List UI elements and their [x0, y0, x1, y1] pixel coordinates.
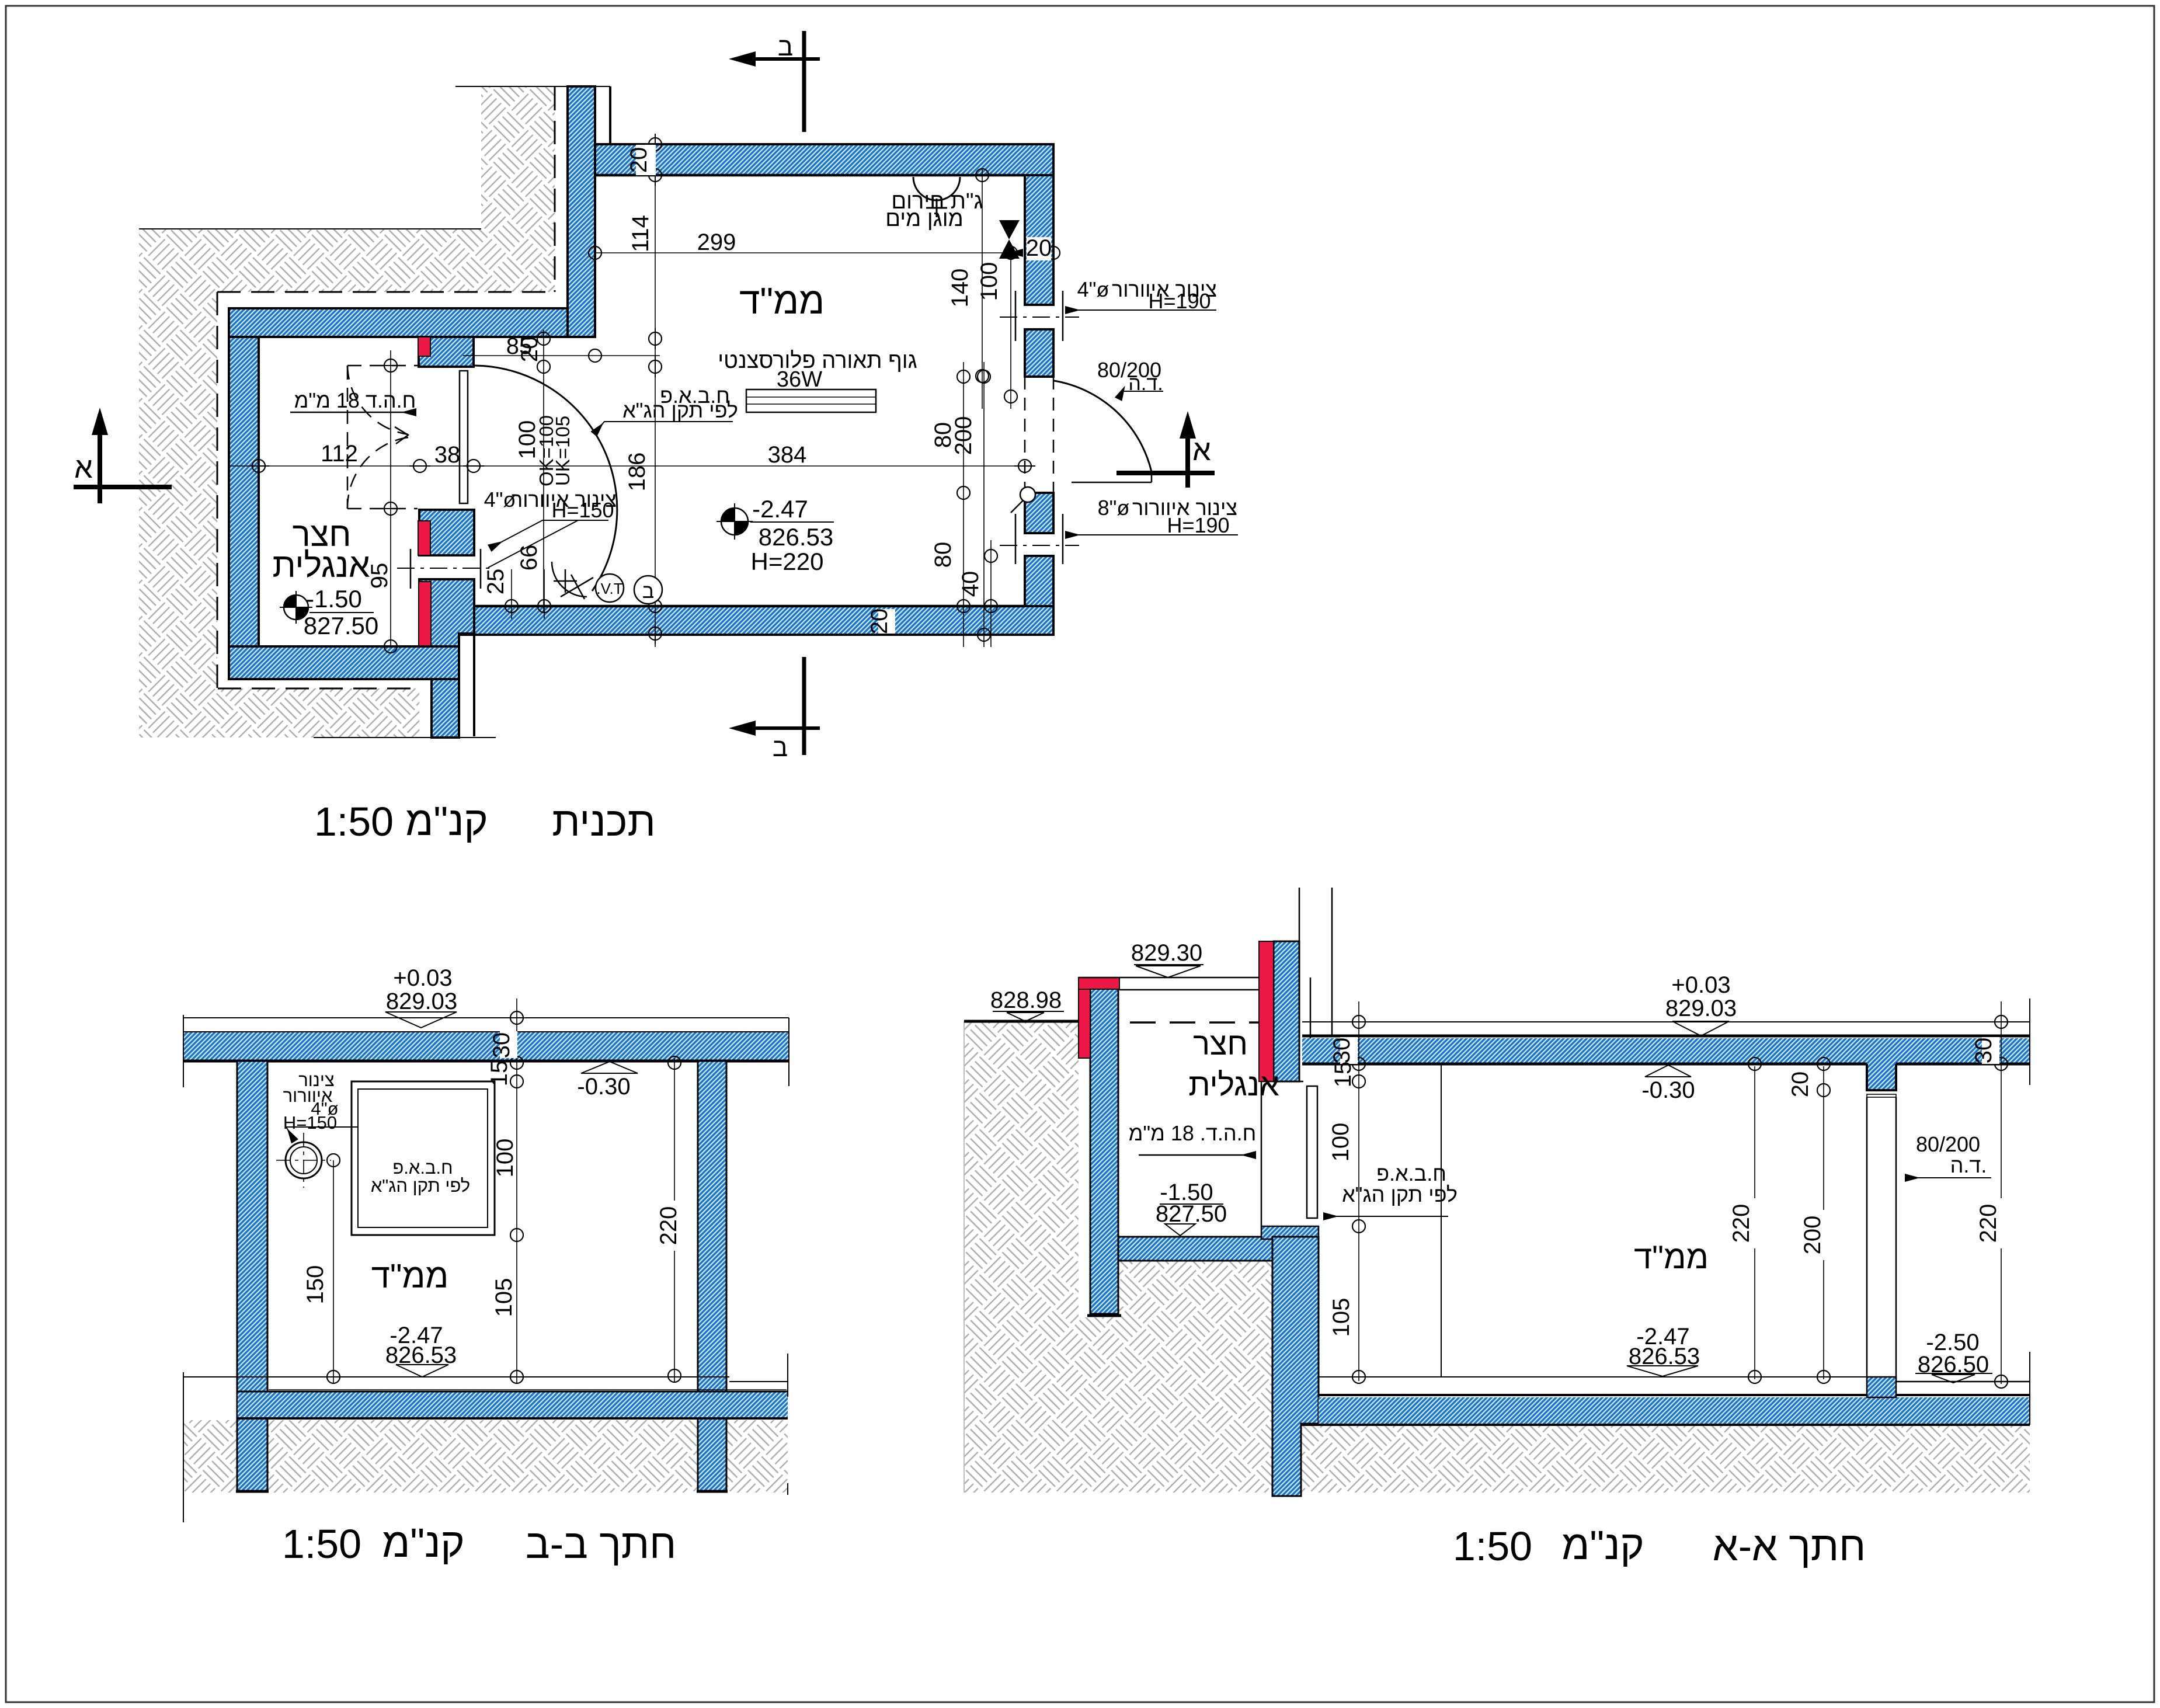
svg-text:150: 150: [302, 1265, 328, 1305]
svg-text:H=220: H=220: [751, 548, 824, 575]
svg-text:95: 95: [367, 563, 392, 589]
svg-text:829.03: 829.03: [386, 989, 457, 1014]
svg-text:30: 30: [489, 1032, 514, 1059]
svg-text:+0.03: +0.03: [1671, 972, 1730, 998]
svg-text:186: 186: [624, 453, 650, 492]
svg-text:-1.50: -1.50: [306, 585, 362, 613]
svg-text:קנ"מ: קנ"מ: [1561, 1522, 1644, 1568]
svg-text:30: 30: [1329, 1038, 1355, 1064]
svg-text:חתך ב-ב: חתך ב-ב: [526, 1521, 676, 1567]
svg-text:ממ"ד: ממ"ד: [1634, 1239, 1709, 1275]
svg-text:20: 20: [626, 147, 652, 173]
svg-text:8"ø: 8"ø: [1098, 496, 1130, 520]
svg-text:66: 66: [516, 545, 542, 571]
svg-text:H=190: H=190: [1148, 289, 1211, 313]
svg-text:-0.30: -0.30: [577, 1074, 630, 1100]
svg-text:א: א: [74, 451, 92, 484]
svg-text:ח.ב.א.פ: ח.ב.א.פ: [392, 1157, 453, 1178]
svg-text:80/200: 80/200: [1916, 1132, 1980, 1156]
svg-text:15: 15: [1330, 1062, 1356, 1088]
svg-text:20: 20: [517, 336, 542, 363]
svg-text:40: 40: [958, 571, 983, 597]
svg-text:+0.03: +0.03: [393, 965, 452, 991]
svg-text:-0.30: -0.30: [1641, 1077, 1695, 1103]
svg-text:ד.ה.: ד.ה.: [1950, 1153, 1987, 1177]
svg-text:1:50: 1:50: [1453, 1523, 1532, 1569]
svg-text:827.50: 827.50: [304, 612, 378, 639]
svg-text:4"ø: 4"ø: [484, 488, 516, 512]
svg-text:ב: ב: [778, 33, 793, 61]
svg-text:38: 38: [434, 442, 461, 468]
svg-text:חתך א-א: חתך א-א: [1713, 1523, 1866, 1569]
svg-text:מוגן מים: מוגן מים: [885, 207, 963, 231]
svg-text:30: 30: [1971, 1038, 1996, 1064]
svg-text:20: 20: [867, 608, 892, 635]
svg-text:H=190: H=190: [1167, 513, 1229, 537]
svg-text:לפי תקן הג"א: לפי תקן הג"א: [622, 398, 738, 422]
svg-text:אנגלית: אנגלית: [272, 547, 370, 585]
svg-text:1:50: 1:50: [282, 1521, 361, 1567]
svg-text:.V.T: .V.T: [596, 580, 622, 597]
svg-text:ב: ב: [773, 733, 788, 762]
svg-text:220: 220: [656, 1206, 681, 1246]
svg-text:ב: ב: [642, 580, 654, 603]
svg-text:100: 100: [492, 1139, 518, 1178]
svg-text:827.50: 827.50: [1156, 1201, 1227, 1227]
svg-text:UK=105: UK=105: [552, 416, 573, 486]
svg-text:1:50: 1:50: [314, 799, 394, 844]
svg-text:220: 220: [1728, 1204, 1754, 1243]
svg-text:ממ"ד: ממ"ד: [739, 280, 825, 322]
svg-text:220: 220: [1975, 1204, 2001, 1243]
svg-text:20: 20: [1026, 235, 1052, 261]
svg-text:36W: 36W: [777, 367, 822, 392]
svg-text:אנגלית: אנגלית: [1188, 1067, 1279, 1102]
svg-text:קנ"מ: קנ"מ: [405, 798, 488, 844]
svg-text:100: 100: [1328, 1123, 1354, 1162]
svg-text:תכנית: תכנית: [552, 799, 656, 844]
svg-text:114: 114: [628, 215, 653, 252]
svg-text:ח.ה.ד. 18 מ"מ: ח.ה.ד. 18 מ"מ: [1129, 1121, 1257, 1145]
svg-text:829.03: 829.03: [1665, 996, 1737, 1021]
svg-text:828.98: 828.98: [990, 987, 1062, 1013]
svg-text:299: 299: [697, 229, 736, 255]
svg-text:ממ"ד: ממ"ד: [371, 1257, 448, 1295]
svg-text:105: 105: [1328, 1298, 1354, 1337]
svg-text:15: 15: [486, 1060, 512, 1087]
svg-text:H=150: H=150: [283, 1112, 337, 1133]
svg-text:200: 200: [951, 416, 976, 455]
svg-text:ח.ב.א.פ: ח.ב.א.פ: [1376, 1161, 1446, 1185]
svg-text:80: 80: [930, 542, 956, 568]
svg-text:H=150: H=150: [551, 498, 614, 522]
svg-text:קנ"מ: קנ"מ: [382, 1520, 464, 1566]
svg-text:-2.47: -2.47: [752, 495, 808, 523]
svg-text:112: 112: [321, 441, 358, 467]
svg-text:384: 384: [768, 442, 807, 468]
svg-text:4"ø: 4"ø: [1077, 277, 1109, 301]
svg-text:100: 100: [976, 262, 1002, 301]
svg-text:25: 25: [483, 569, 509, 595]
svg-text:200: 200: [1800, 1216, 1825, 1255]
svg-text:105: 105: [491, 1278, 517, 1317]
svg-text:826.53: 826.53: [759, 523, 833, 551]
svg-text:829.30: 829.30: [1131, 940, 1202, 966]
svg-text:140: 140: [947, 269, 973, 308]
svg-text:ח.ה.ד 18 מ"מ: ח.ה.ד 18 מ"מ: [294, 388, 416, 412]
svg-text:חצר: חצר: [1193, 1027, 1248, 1062]
svg-text:20: 20: [1787, 1072, 1813, 1098]
svg-text:לפי תקן הג"א: לפי תקן הג"א: [371, 1175, 470, 1196]
svg-text:א: א: [1192, 434, 1211, 467]
